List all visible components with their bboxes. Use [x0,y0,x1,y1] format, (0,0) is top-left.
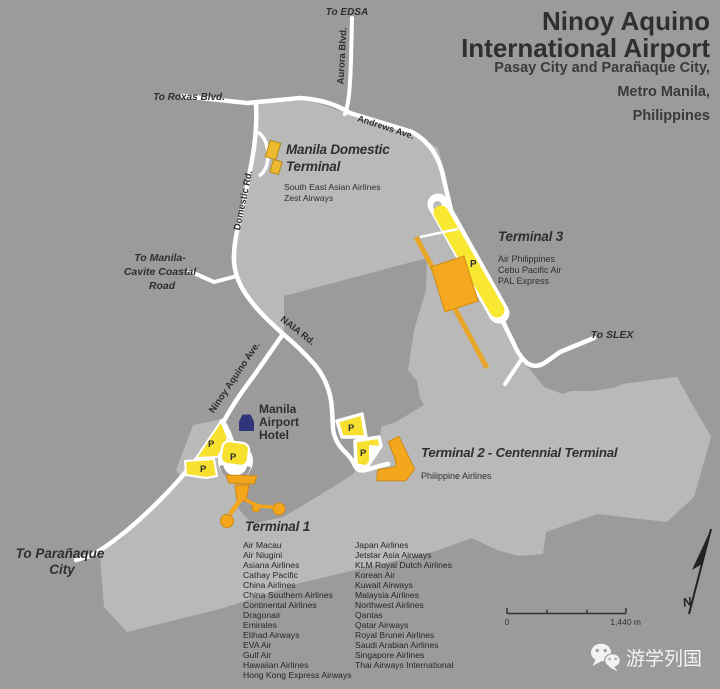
svg-text:Royal Brunei Airlines: Royal Brunei Airlines [355,630,434,640]
svg-text:South East Asian Airlines: South East Asian Airlines [284,182,381,192]
svg-text:Malaysia Airlines: Malaysia Airlines [355,590,419,600]
svg-text:游学列国: 游学列国 [626,648,702,670]
svg-text:P: P [360,448,367,459]
svg-text:City: City [49,562,76,577]
svg-text:P: P [230,452,237,463]
svg-text:Kuwait Airways: Kuwait Airways [355,580,413,590]
svg-text:P: P [200,464,207,475]
svg-text:Dragonair: Dragonair [243,610,281,620]
svg-text:To Parañaque: To Parañaque [16,546,105,561]
svg-text:Air Niugini: Air Niugini [243,550,282,560]
svg-text:Saudi Arabian Airlines: Saudi Arabian Airlines [355,640,439,650]
svg-text:Philippine Airlines: Philippine Airlines [421,471,492,481]
svg-text:Cathay Pacific: Cathay Pacific [243,570,299,580]
svg-text:Thai Airways International: Thai Airways International [355,660,453,670]
svg-text:EVA Air: EVA Air [243,640,272,650]
svg-text:China Southern Airlines: China Southern Airlines [243,590,333,600]
svg-text:To Roxas Blvd.: To Roxas Blvd. [153,92,225,103]
svg-text:P: P [470,259,477,270]
svg-text:Hong Kong Express Airways: Hong Kong Express Airways [243,670,351,680]
svg-text:Air Macau: Air Macau [243,540,282,550]
svg-text:Metro Manila,: Metro Manila, [617,84,710,100]
svg-text:1,440 m: 1,440 m [610,617,641,627]
svg-text:To Manila-: To Manila- [134,252,186,264]
svg-text:Hawaiian Airlines: Hawaiian Airlines [243,660,308,670]
svg-text:China Airlines: China Airlines [243,580,296,590]
svg-text:Philippines: Philippines [633,108,710,124]
svg-text:P: P [208,439,215,450]
svg-text:Airport: Airport [259,415,299,429]
svg-text:To SLEX: To SLEX [591,329,635,341]
svg-text:Korean Air: Korean Air [355,570,395,580]
svg-text:PAL Express: PAL Express [498,276,550,286]
svg-text:Asiana Airlines: Asiana Airlines [243,560,299,570]
svg-text:Terminal 1: Terminal 1 [245,519,310,534]
svg-text:Qantas: Qantas [355,610,383,620]
svg-text:0: 0 [505,617,510,627]
svg-text:Japan Airlines: Japan Airlines [355,540,409,550]
svg-text:Northwest Airlines: Northwest Airlines [355,600,424,610]
svg-text:Terminal: Terminal [286,159,341,174]
svg-text:Ninoy Aquino: Ninoy Aquino [542,6,710,36]
svg-text:Air Philippines: Air Philippines [498,254,556,264]
svg-text:To EDSA: To EDSA [326,7,368,18]
svg-text:Emirates: Emirates [243,620,277,630]
svg-text:Cebu Pacific Air: Cebu Pacific Air [498,265,562,275]
svg-text:Continental Airlines: Continental Airlines [243,600,317,610]
svg-text:Manila Domestic: Manila Domestic [286,142,390,157]
svg-text:Etihad Airways: Etihad Airways [243,630,299,640]
svg-text:Pasay City and Parañaque City,: Pasay City and Parañaque City, [494,60,710,76]
svg-text:P: P [348,423,355,434]
svg-text:Singapore Airlines: Singapore Airlines [355,650,424,660]
svg-text:Hotel: Hotel [259,428,289,442]
svg-text:Cavite Coastal: Cavite Coastal [124,266,197,278]
svg-text:Manila: Manila [259,402,297,416]
svg-text:Qatar Airways: Qatar Airways [355,620,409,630]
svg-text:KLM Royal Dutch Airlines: KLM Royal Dutch Airlines [355,560,452,570]
svg-text:Road: Road [149,280,176,292]
svg-text:Jetstar Asia Airways: Jetstar Asia Airways [355,550,431,560]
svg-text:Zest Airways: Zest Airways [284,193,334,203]
svg-text:Terminal 3: Terminal 3 [498,229,564,244]
svg-text:Terminal 2 - Centennial Termin: Terminal 2 - Centennial Terminal [421,445,618,460]
svg-text:International Airport: International Airport [461,33,710,63]
svg-text:Gulf Air: Gulf Air [243,650,271,660]
